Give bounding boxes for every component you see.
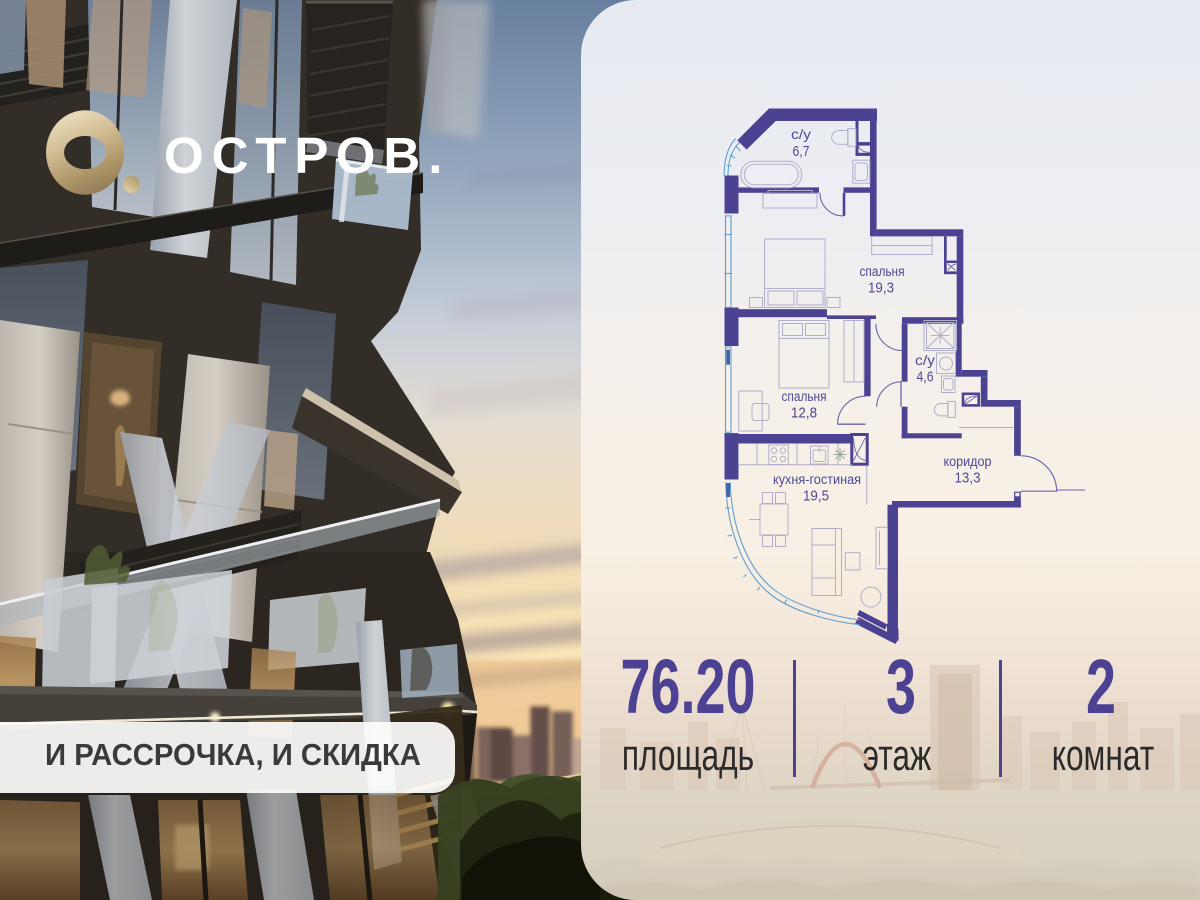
svg-text:ОСТРОВ.: ОСТРОВ. <box>164 127 450 184</box>
